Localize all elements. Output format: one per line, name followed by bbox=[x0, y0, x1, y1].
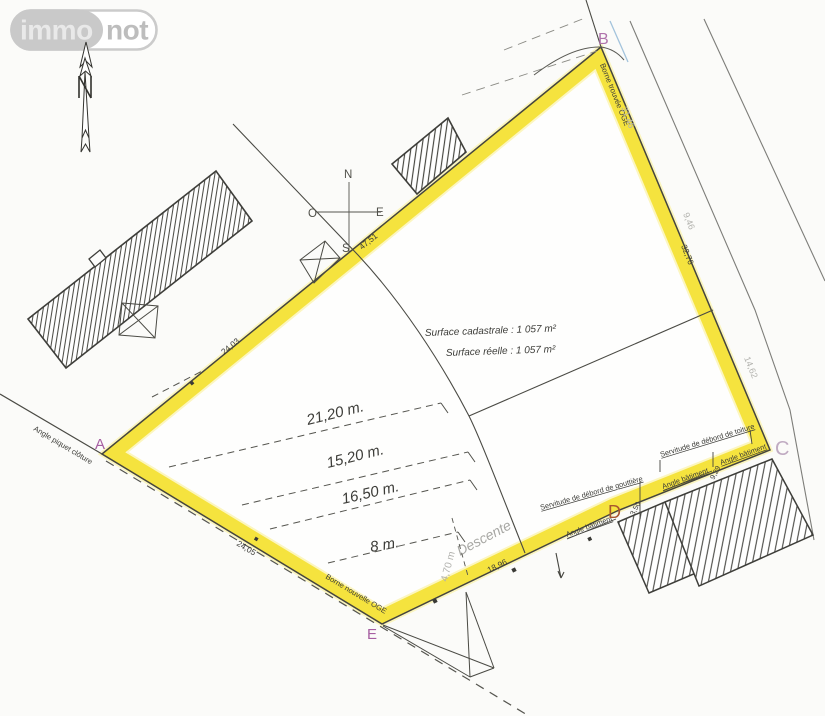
svg-text:C: C bbox=[775, 438, 789, 460]
svg-text:not: not bbox=[106, 15, 148, 46]
svg-text:S: S bbox=[342, 243, 350, 255]
svg-text:B: B bbox=[598, 31, 609, 48]
svg-text:immo: immo bbox=[20, 15, 93, 46]
svg-text:O: O bbox=[308, 208, 317, 220]
svg-text:D: D bbox=[608, 502, 621, 522]
svg-text:N: N bbox=[344, 169, 352, 181]
svg-text:E: E bbox=[367, 626, 377, 643]
svg-text:E: E bbox=[376, 207, 384, 219]
svg-text:A: A bbox=[95, 436, 105, 453]
